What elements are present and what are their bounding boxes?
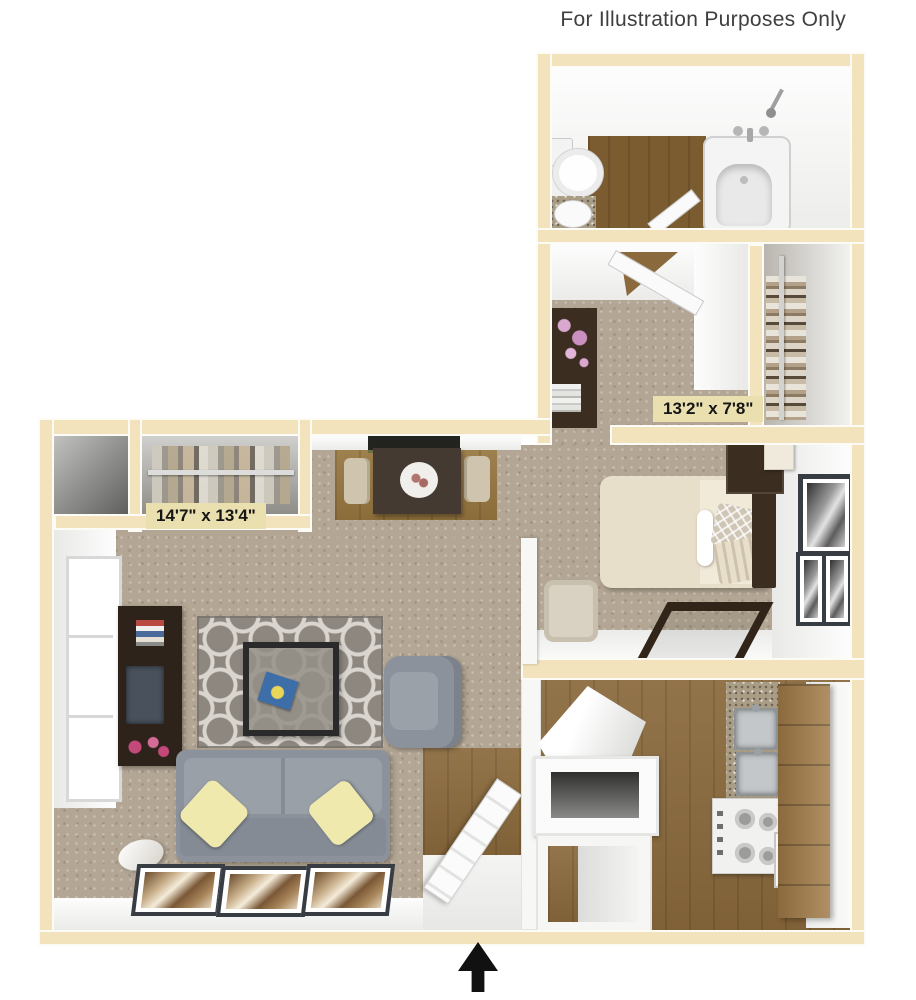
shower-head — [766, 108, 776, 118]
floorplan-canvas: 14'7" x 13'4" 13'2" x 7'8" For Illustrat… — [0, 0, 916, 1000]
bedroom2-east-wall-face — [694, 244, 748, 390]
window — [66, 556, 122, 802]
floor-art-frame-2 — [216, 866, 311, 917]
stove-burner — [759, 813, 777, 831]
floor-art-image — [311, 872, 385, 908]
faucet — [754, 748, 762, 756]
counter-opening — [551, 772, 639, 818]
desk-books — [551, 384, 581, 412]
kitchen-sink-1 — [734, 708, 778, 750]
wall-art-image — [804, 560, 818, 618]
floor-art-frame-3 — [301, 864, 395, 916]
coffee-table — [243, 642, 339, 736]
wall-art-image — [807, 483, 845, 547]
kitchen-cabinets — [778, 684, 830, 918]
hallway-opening-floor — [521, 445, 537, 538]
bathroom-wood-floor — [588, 136, 706, 228]
console-screen — [126, 666, 164, 724]
pass-through-counter — [533, 756, 659, 836]
coat-closet-back — [548, 846, 578, 922]
console-flowers — [122, 732, 174, 762]
tub-faucet-handle-left — [733, 126, 743, 136]
bathroom-sink — [554, 200, 592, 228]
bathtub-drain — [740, 176, 748, 184]
coffee-table-book — [257, 671, 299, 710]
bedroom-wall-art-small-2 — [822, 552, 852, 626]
floor-art-image — [226, 874, 301, 909]
bedroom-chair — [544, 580, 598, 642]
storage-closet — [54, 432, 128, 516]
toilet-bowl — [552, 148, 604, 198]
media-console — [118, 606, 182, 766]
coat-closet-floor — [578, 846, 638, 922]
floor-art-frame-1 — [131, 864, 225, 916]
tub-faucet-handle-right — [759, 126, 769, 136]
wall-bottom — [38, 930, 866, 946]
wall-living-bedroom — [521, 538, 537, 664]
hanging-clothes — [152, 446, 290, 504]
stove — [712, 798, 782, 874]
headboard — [752, 492, 776, 588]
living-room-dimensions-label: 14'7" x 13'4" — [146, 503, 266, 529]
window-mullion — [69, 715, 113, 718]
disclaimer-text: For Illustration Purposes Only — [500, 8, 846, 32]
armchair-cushion — [390, 672, 438, 730]
window-mullion — [69, 635, 113, 638]
wall-upper-left — [536, 52, 552, 445]
bedroom2-closet-shelves — [766, 276, 806, 420]
wall-bathroom-bedroom2 — [536, 228, 866, 244]
faucet — [752, 704, 760, 712]
stove-burner — [735, 843, 755, 863]
stove-burner — [735, 809, 755, 829]
closet-rod — [148, 470, 294, 475]
wall-right — [850, 52, 866, 946]
wall-bedroom-top — [610, 425, 866, 445]
stove-controls — [717, 811, 723, 863]
floor-art-image — [141, 872, 215, 908]
bedroom2-dimensions-label: 13'2" x 7'8" — [653, 396, 763, 422]
wall-bedroom-bottom — [521, 658, 866, 680]
desk-flowers — [551, 310, 595, 372]
coat-closet — [536, 834, 652, 934]
wall-upper-top — [536, 52, 866, 68]
dining-chair-right — [464, 456, 490, 502]
wall-art-image — [830, 560, 844, 618]
armchair — [384, 656, 462, 748]
wall-left — [38, 418, 54, 946]
bathtub-basin — [716, 164, 772, 226]
closet-pole — [779, 256, 784, 420]
dining-chair-left — [344, 458, 370, 504]
kitchen-sink-2 — [736, 752, 780, 796]
dining-plate — [400, 462, 438, 498]
wall-main-top — [38, 418, 552, 436]
entry-arrow-icon — [458, 942, 498, 992]
bedroom-wall-art-large — [798, 474, 854, 556]
console-books — [136, 620, 164, 646]
tub-spout — [747, 128, 753, 142]
